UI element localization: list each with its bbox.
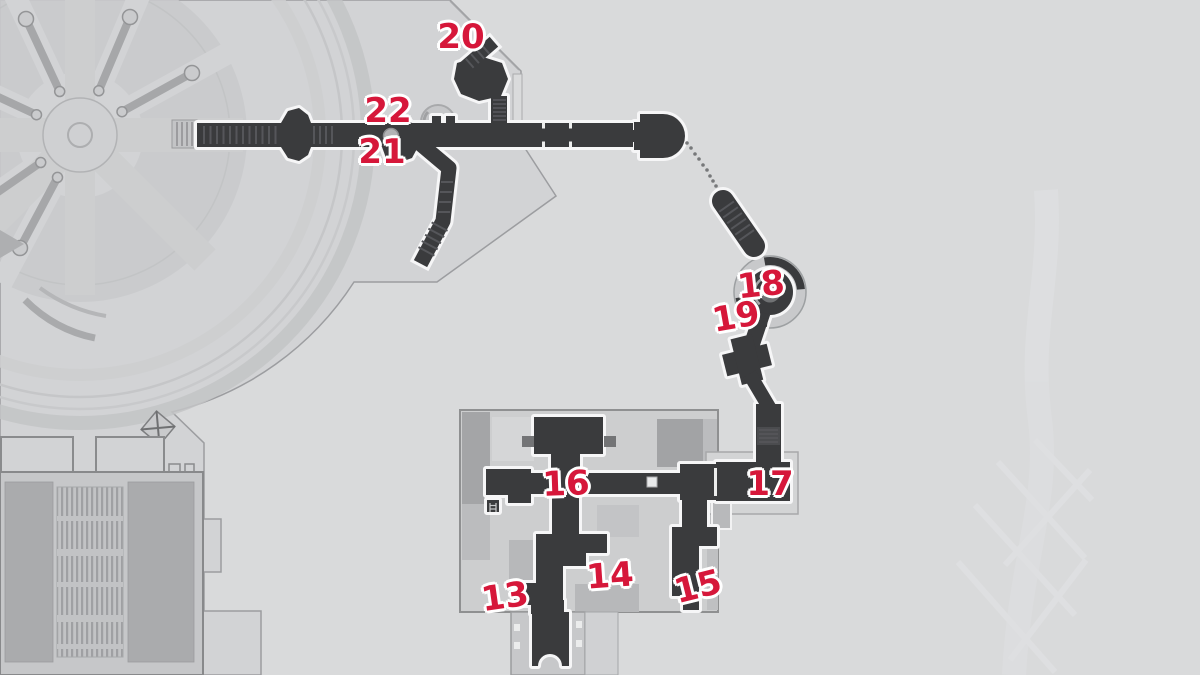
game-map[interactable]: 13141516171819202122 bbox=[0, 0, 1200, 675]
seating-building bbox=[0, 437, 203, 675]
door-marker bbox=[647, 477, 657, 487]
junction-disc bbox=[384, 129, 399, 144]
map-canvas bbox=[0, 0, 1200, 675]
